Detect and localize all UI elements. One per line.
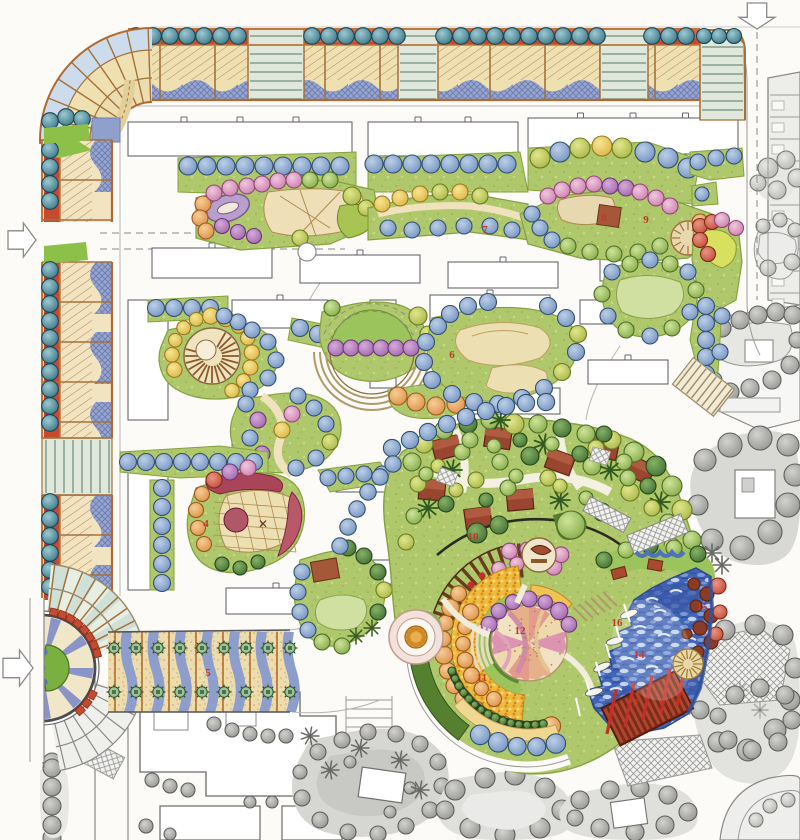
svg-text:5: 5 [205,667,211,679]
svg-text:12: 12 [515,625,527,637]
svg-text:14: 14 [634,649,646,661]
svg-text:4: 4 [203,518,209,530]
svg-text:6: 6 [449,349,455,361]
svg-text:16: 16 [612,617,624,629]
svg-text:10: 10 [468,531,480,543]
svg-text:11: 11 [477,672,487,684]
svg-text:7: 7 [482,224,488,236]
svg-text:9: 9 [643,214,649,226]
svg-text:✕: ✕ [258,517,268,531]
svg-text:13: 13 [628,697,640,709]
svg-text:15: 15 [697,601,709,613]
svg-text:8: 8 [601,212,607,224]
